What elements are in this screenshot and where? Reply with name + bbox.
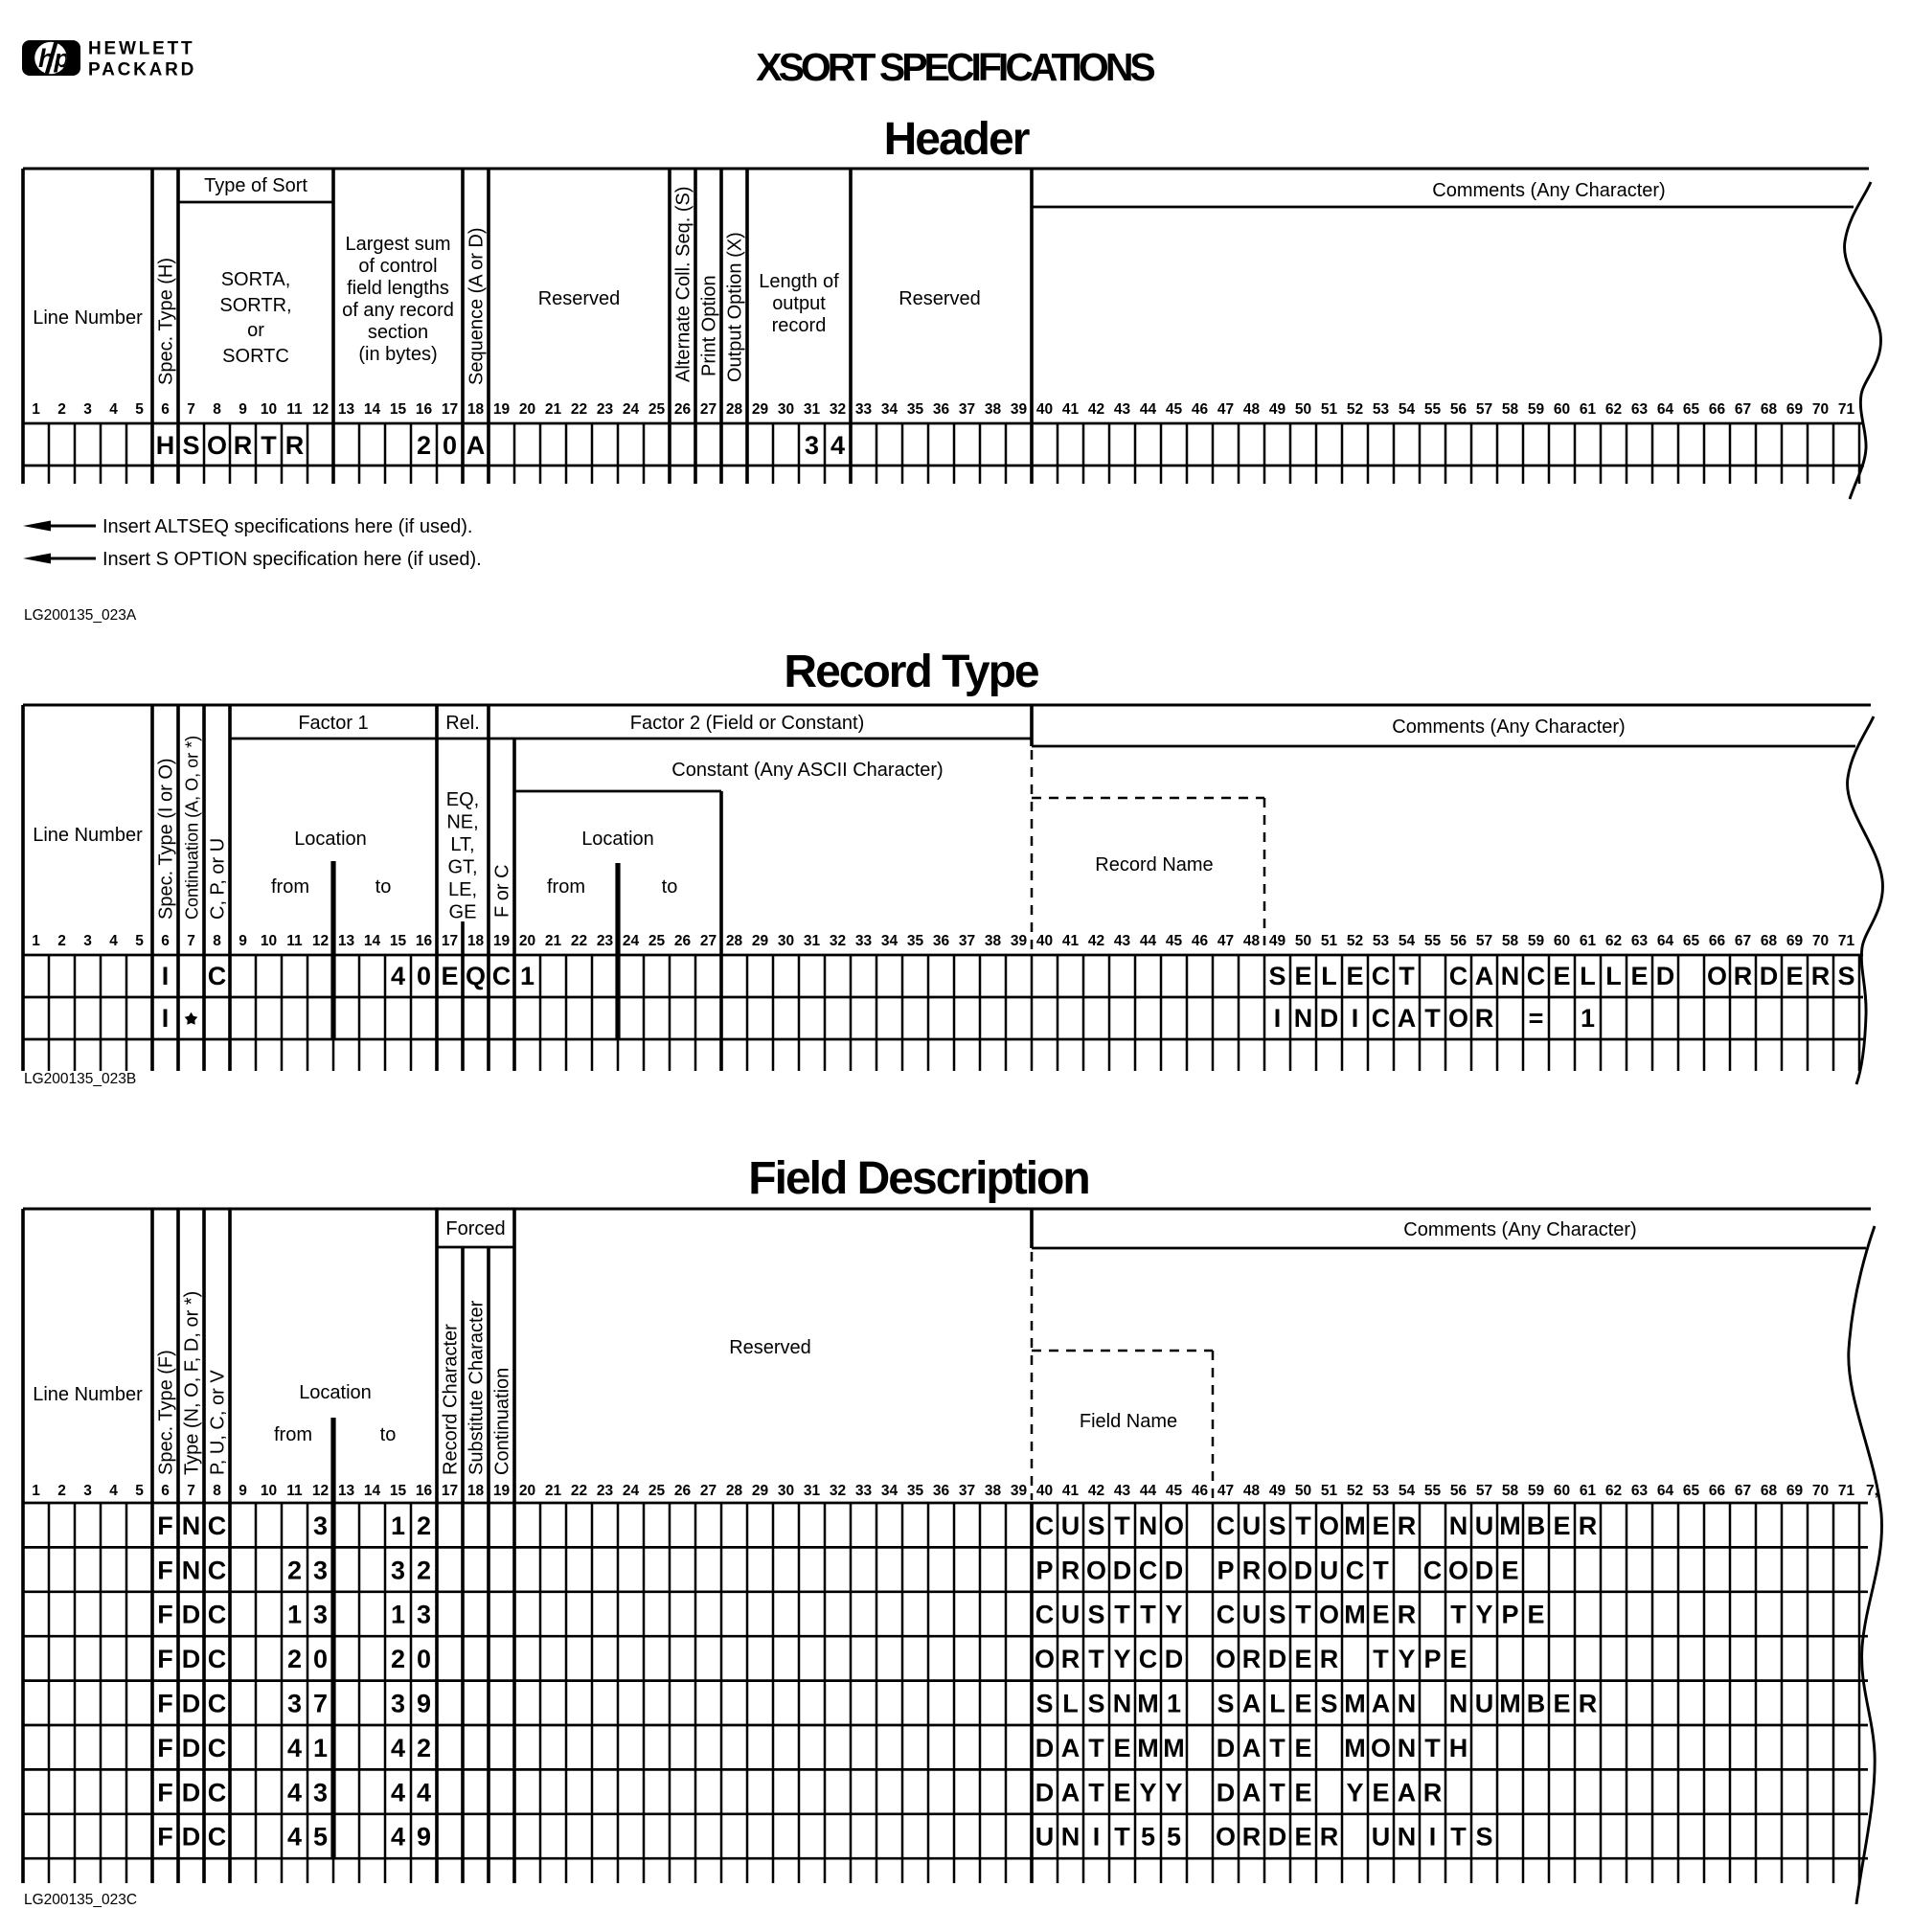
svg-text:Factor 2 (Field or Constant): Factor 2 (Field or Constant) [630, 713, 865, 734]
svg-text:to: to [375, 876, 392, 898]
svg-text:to: to [380, 1424, 397, 1445]
svg-text:from: from [547, 876, 585, 898]
svg-text:Field Name: Field Name [1080, 1411, 1177, 1432]
svg-text:C, P, or U: C, P, or U [208, 838, 229, 920]
svg-text:Spec. Type (H): Spec. Type (H) [156, 258, 177, 385]
svg-text:Record Name: Record Name [1095, 854, 1213, 875]
svg-text:Output Option (X): Output Option (X) [725, 232, 746, 382]
svg-text:Continuation: Continuation [492, 1368, 513, 1475]
svg-text:from: from [274, 1424, 312, 1445]
svg-text:Type of Sort: Type of Sort [204, 175, 307, 196]
svg-text:LG200135_023A: LG200135_023A [24, 607, 137, 624]
svg-text:Insert ALTSEQ specifications h: Insert ALTSEQ specifications here (if us… [102, 516, 472, 537]
svg-text:Reserved: Reserved [538, 288, 621, 309]
svg-text:Reserved: Reserved [729, 1337, 811, 1358]
svg-text:XSORT SPECIFICATIONS: XSORT SPECIFICATIONS [756, 45, 1154, 89]
svg-text:Comments (Any Character): Comments (Any Character) [1392, 716, 1625, 738]
svg-text:LG200135_023B: LG200135_023B [24, 1071, 136, 1087]
svg-text:Largest sumof controlfield len: Largest sumof controlfield lengthsof any… [342, 234, 454, 365]
svg-text:Type (N, O, F, D, or *): Type (N, O, F, D, or *) [182, 1291, 203, 1475]
svg-text:Line Number: Line Number [33, 1384, 143, 1405]
svg-text:Location: Location [299, 1382, 372, 1403]
svg-text:Reserved: Reserved [899, 288, 981, 309]
svg-text:Print Option: Print Option [699, 275, 720, 376]
svg-text:Comments (Any Character): Comments (Any Character) [1403, 1219, 1636, 1240]
svg-text:Comments (Any Character): Comments (Any Character) [1432, 180, 1665, 201]
svg-text:F or C: F or C [492, 864, 513, 918]
svg-text:Spec. Type (F): Spec. Type (F) [156, 1350, 177, 1475]
svg-text:Sequence (A or D): Sequence (A or D) [466, 227, 488, 385]
svg-text:I: I [162, 1004, 170, 1033]
svg-text:PACKARD: PACKARD [88, 60, 196, 80]
svg-text:P, U, C, or V: P, U, C, or V [208, 1370, 229, 1475]
svg-text:Spec. Type (I or O): Spec. Type (I or O) [156, 758, 177, 920]
svg-text:Header: Header [884, 114, 1030, 165]
svg-text:to: to [662, 876, 678, 898]
svg-text:SELECTCANCELLEDORDERS: SELECTCANCELLEDORDERS [1268, 962, 1854, 990]
svg-text:Constant (Any ASCII Character): Constant (Any ASCII Character) [671, 760, 943, 781]
svg-text:from: from [271, 876, 309, 898]
svg-text:Record Type: Record Type [784, 647, 1038, 697]
svg-text:HEWLETT: HEWLETT [88, 39, 194, 59]
svg-text:Forced: Forced [445, 1218, 505, 1239]
svg-text:Location: Location [581, 829, 654, 850]
svg-text:EQ,NE,LT,GT,LE,GE: EQ,NE,LT,GT,LE,GE [446, 789, 479, 923]
svg-text:LG200135_023C: LG200135_023C [24, 1892, 137, 1908]
svg-text:Insert S OPTION specification: Insert S OPTION specification here (if u… [102, 549, 482, 570]
svg-text:Record Character: Record Character [441, 1324, 462, 1475]
svg-text:Substitute Character: Substitute Character [466, 1300, 488, 1475]
svg-text:Continuation (A, O, or *): Continuation (A, O, or *) [183, 736, 202, 920]
svg-text:Location: Location [294, 829, 367, 850]
svg-text:Line Number: Line Number [33, 825, 143, 846]
svg-text:Factor 1: Factor 1 [298, 713, 368, 734]
svg-text:Rel.: Rel. [445, 713, 480, 734]
svg-text:Alternate Coll. Seq. (S): Alternate Coll. Seq. (S) [673, 186, 694, 382]
svg-text:Line Number: Line Number [33, 307, 143, 329]
svg-text:Field Description: Field Description [748, 1153, 1088, 1204]
